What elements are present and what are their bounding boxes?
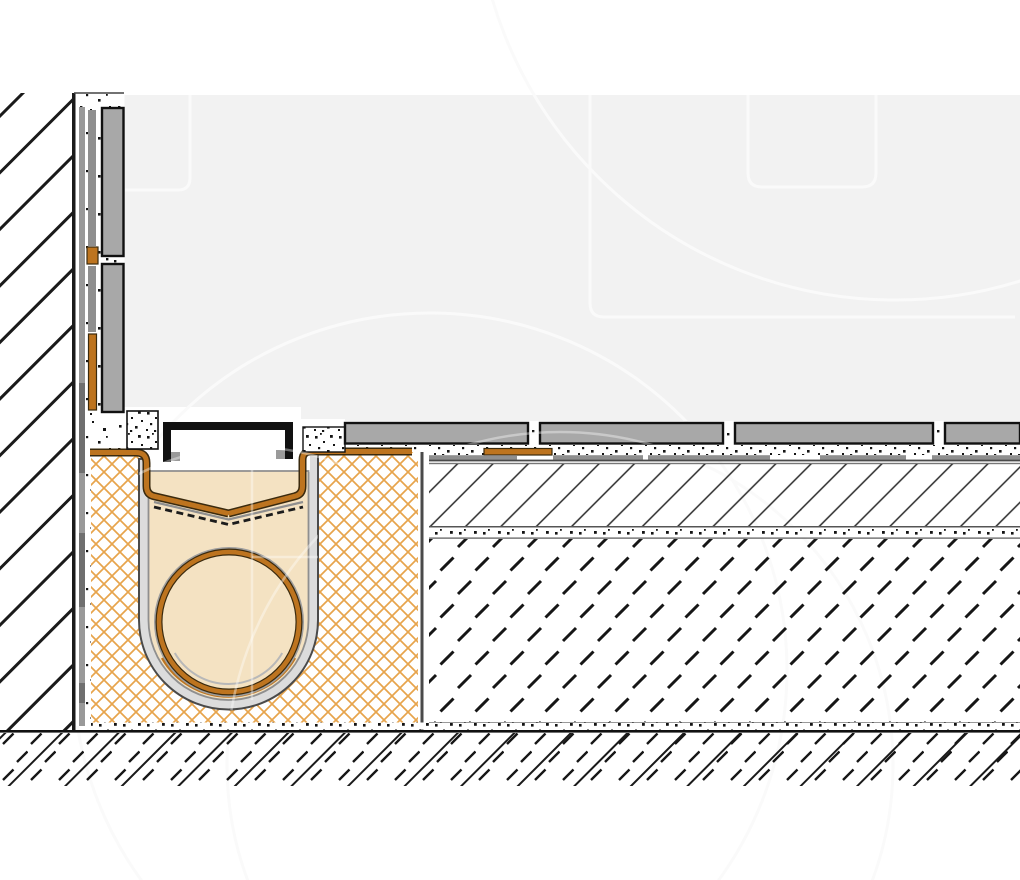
insulation-layer [429,539,1020,722]
tile-adhesive-layer [345,445,1020,455]
mortar-screed-joint [418,449,429,731]
wall-backing-strip [79,107,85,726]
mortar-block-right [303,427,345,452]
pipe-wall [159,552,299,692]
section-drawing: Cross-section detail drawing: tiled floo… [0,0,1020,880]
floor-tile [945,423,1020,444]
mortar-block-left [127,411,158,449]
wall-tile [102,108,124,256]
slab-separation-band [91,723,1020,730]
drain-outlet-pipe [155,548,303,696]
concrete-slab [0,730,1020,786]
floor-tile [345,423,528,444]
wall-face-line [72,93,76,730]
floor-tile [735,423,933,444]
screed-layer [429,464,1020,526]
room-background [125,95,1020,421]
masonry-wall [0,93,76,730]
floor-tiles [345,423,1020,444]
wall-tile [102,264,124,412]
floor-assembly-right [345,445,1020,723]
slab-top-line [0,730,1020,733]
section-drawing-stage: Cross-section detail drawing: tiled floo… [0,0,1020,880]
separation-layer [429,528,1020,537]
